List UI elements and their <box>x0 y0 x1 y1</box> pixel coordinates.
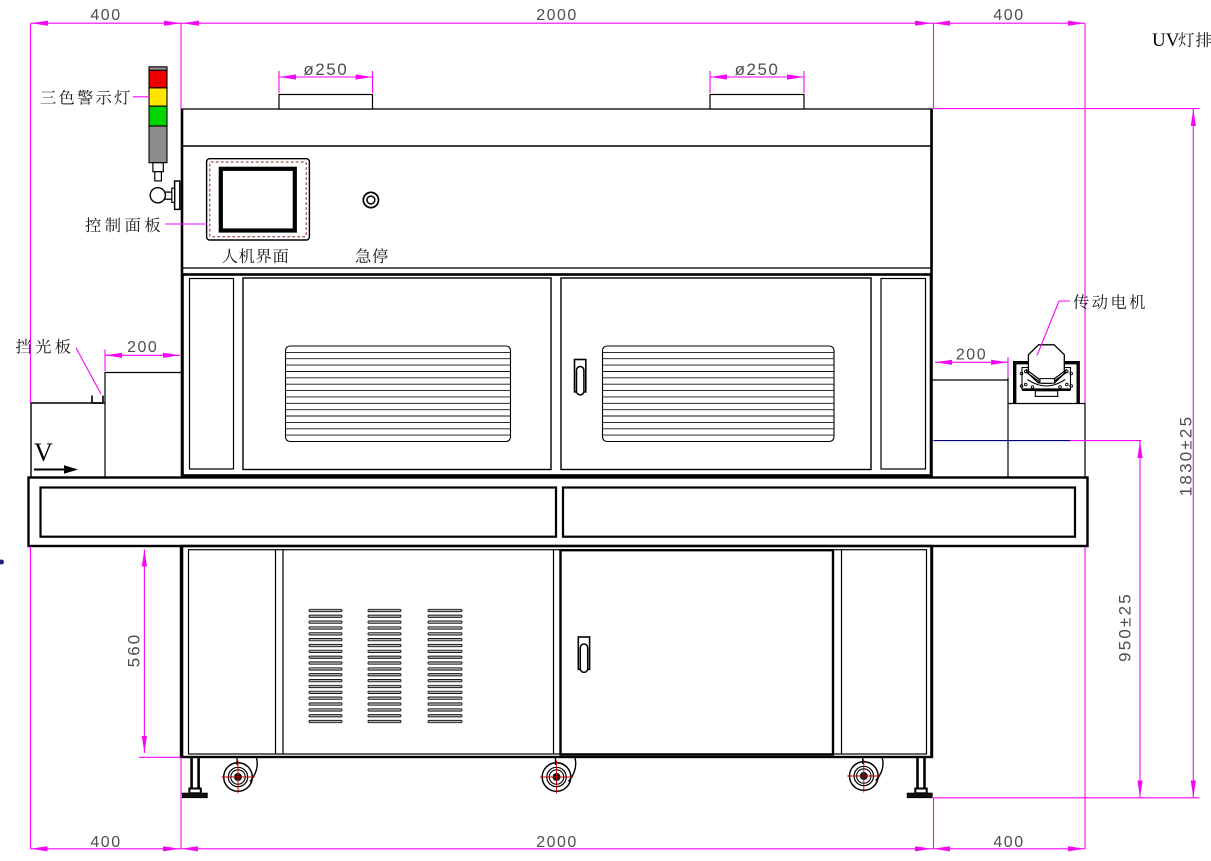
svg-text:ø250: ø250 <box>735 60 780 79</box>
svg-text:ø250: ø250 <box>303 60 348 79</box>
svg-text:400: 400 <box>90 7 121 24</box>
svg-text:400: 400 <box>90 834 121 851</box>
svg-text:UV: UV <box>1152 30 1180 51</box>
svg-text:400: 400 <box>993 834 1024 851</box>
svg-text:400: 400 <box>993 7 1024 24</box>
svg-text:950±25: 950±25 <box>1116 592 1135 662</box>
svg-text:2000: 2000 <box>536 834 578 851</box>
svg-text:V: V <box>34 438 53 467</box>
svg-text:1830±25: 1830±25 <box>1177 415 1196 496</box>
svg-text:560: 560 <box>125 633 144 667</box>
svg-text:200: 200 <box>127 339 158 356</box>
svg-text:2000: 2000 <box>536 7 578 24</box>
svg-text:200: 200 <box>956 347 987 364</box>
